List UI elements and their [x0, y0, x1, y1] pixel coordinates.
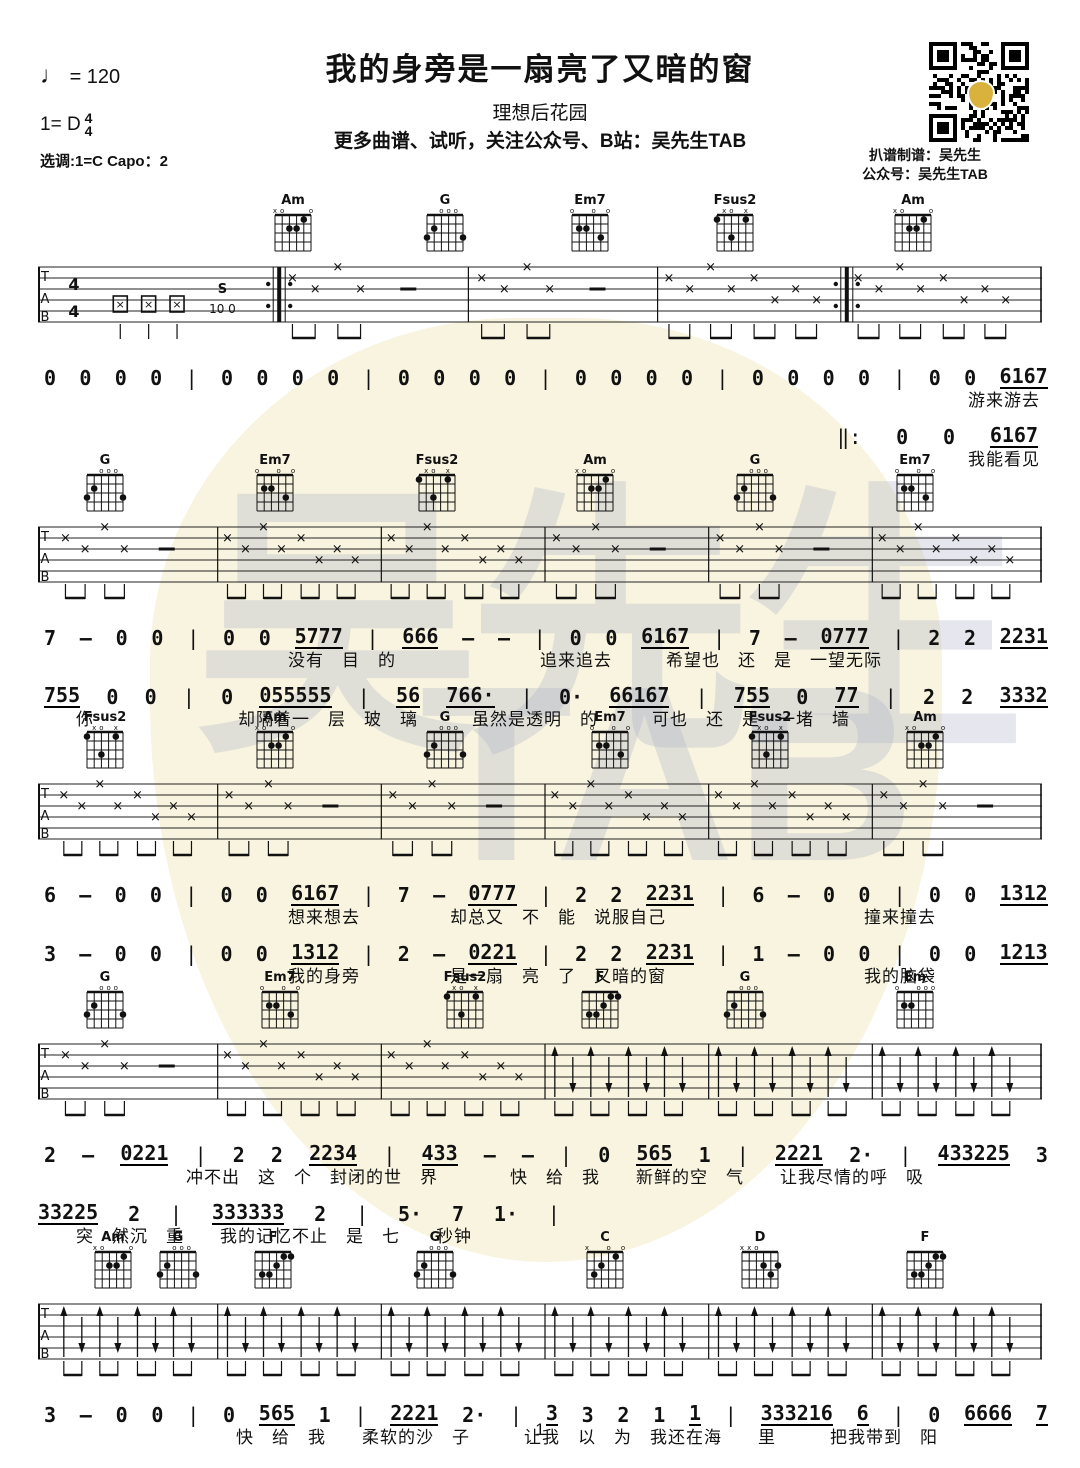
chord-diagram-G: Gooo	[153, 1230, 205, 1301]
barline: |	[548, 1203, 560, 1225]
jianpu-token: 755	[734, 684, 770, 708]
svg-text:×: ×	[663, 271, 674, 286]
barline: |	[363, 367, 375, 389]
tab-staff: TAB	[38, 1296, 1042, 1392]
barline: |	[363, 943, 375, 965]
svg-text:x: x	[905, 724, 909, 732]
svg-text:×: ×	[76, 799, 87, 814]
credit-transcriber: 扒谱制谱：吴先生	[790, 146, 1060, 165]
svg-text:o: o	[746, 984, 750, 992]
svg-text:o: o	[916, 984, 920, 992]
jianpu-token: 0	[398, 367, 410, 389]
chord-diagram-G: Gooo	[80, 453, 132, 524]
chord-diagram-G: Gooo	[410, 1230, 462, 1301]
system-3: Fsus2xoxAmxooGoooEm7oooFsus2xoxAmxooTAB×…	[38, 710, 1042, 990]
jianpu-token: 0	[44, 367, 56, 389]
jianpu-token: 0	[220, 943, 232, 965]
svg-text:×: ×	[522, 260, 533, 275]
jianpu-token: 6	[752, 884, 764, 906]
svg-text:o: o	[931, 984, 935, 992]
jianpu-token: 2	[610, 943, 622, 965]
svg-text:×: ×	[222, 1048, 233, 1063]
chord-diagram-Em7: Em7ooo	[565, 193, 617, 264]
svg-text:×: ×	[355, 282, 366, 297]
svg-text:×: ×	[898, 799, 909, 814]
chord-diagram-Fsus2: Fsus2xox	[710, 193, 762, 264]
jianpu-token: –	[462, 627, 474, 649]
svg-text:Em7: Em7	[594, 710, 625, 725]
jianpu-token: –	[79, 943, 91, 965]
svg-text:o: o	[739, 984, 743, 992]
jianpu-token: 2231	[1000, 625, 1048, 649]
svg-text:×: ×	[551, 531, 562, 546]
svg-text:x: x	[255, 724, 259, 732]
jianpu-token: 0	[433, 367, 445, 389]
number-line: 6–00|006167|7–0777|222231|6–00|001312	[38, 876, 1054, 906]
jianpu-token: 7	[44, 627, 56, 649]
jianpu-token: 0	[610, 367, 622, 389]
svg-text:o: o	[916, 467, 920, 475]
jianpu-token: 0	[292, 367, 304, 389]
jianpu-token: 2	[961, 686, 973, 708]
svg-text:Em7: Em7	[574, 193, 605, 208]
jianpu-token: 0	[752, 367, 764, 389]
svg-text:×: ×	[1004, 553, 1015, 568]
barline: |	[383, 1144, 395, 1166]
svg-text:×: ×	[915, 282, 926, 297]
chord-diagram-C: Cxoo	[580, 1230, 632, 1301]
svg-text:Fsus2: Fsus2	[749, 710, 792, 725]
svg-text:×: ×	[224, 788, 235, 803]
svg-text:×: ×	[895, 542, 906, 557]
svg-text:×: ×	[283, 799, 294, 814]
jianpu-token: 7	[398, 884, 410, 906]
jianpu-token: 1312	[1000, 882, 1048, 906]
svg-text:×: ×	[659, 799, 670, 814]
svg-text:×: ×	[476, 271, 487, 286]
jianpu-token: 2	[928, 627, 940, 649]
svg-text:×: ×	[58, 788, 69, 803]
svg-text:T: T	[40, 1047, 49, 1062]
svg-text:G: G	[440, 193, 451, 208]
jianpu-token: 2234	[309, 1142, 357, 1166]
svg-text:×: ×	[60, 531, 71, 546]
tuning-capo-info: 选调:1=C Capo：2	[40, 150, 168, 171]
svg-text:×: ×	[168, 799, 179, 814]
jianpu-token: 1	[699, 1144, 711, 1166]
chord-diagram-G: Gooo	[80, 970, 132, 1041]
svg-text:×: ×	[332, 1059, 343, 1074]
jianpu-token: –	[484, 1144, 496, 1166]
svg-text:×: ×	[80, 1059, 91, 1074]
jianpu-token: 6167	[990, 424, 1038, 448]
jianpu-token: 2	[271, 1144, 283, 1166]
svg-text:10 0: 10 0	[209, 302, 236, 316]
jianpu-token: 77	[835, 684, 859, 708]
svg-text:o: o	[255, 467, 259, 475]
svg-text:×: ×	[641, 810, 652, 825]
svg-text:×: ×	[713, 788, 724, 803]
svg-text:G: G	[100, 970, 111, 985]
svg-text:T: T	[40, 1307, 49, 1322]
jianpu-token: 0	[570, 627, 582, 649]
svg-text:×: ×	[544, 282, 555, 297]
svg-text:T: T	[40, 270, 49, 285]
svg-text:B: B	[41, 1347, 50, 1362]
jianpu-token: 0	[221, 686, 233, 708]
barline: |	[894, 884, 906, 906]
number-line: 7–00|005777|666––|006167|7–0777|222231	[38, 619, 1054, 649]
svg-text:×: ×	[144, 298, 153, 311]
chord-diagram-D: Dxxo	[735, 1230, 787, 1301]
jianpu-token: 6167	[1000, 365, 1048, 389]
svg-text:×: ×	[422, 1037, 433, 1052]
svg-text:×: ×	[240, 542, 251, 557]
chord-diagram-G: Gooo	[420, 193, 472, 264]
jianpu-token: 0	[598, 1144, 610, 1166]
chord-diagram-Em7: Em7ooo	[250, 453, 302, 524]
svg-text:×: ×	[119, 542, 130, 557]
svg-text:Fsus2: Fsus2	[416, 453, 459, 468]
jianpu-token: 5777	[295, 625, 343, 649]
svg-text:Am: Am	[583, 453, 607, 468]
barline: |	[539, 367, 551, 389]
tab-staff: TAB××××××××××××××××××××	[38, 1036, 1042, 1132]
jianpu-token: 3	[1036, 1144, 1048, 1166]
svg-text:o: o	[106, 467, 110, 475]
chord-diagram-Em7: Em7ooo	[585, 710, 637, 781]
svg-text:B: B	[41, 1087, 50, 1102]
barline: |	[560, 1144, 572, 1166]
chord-row: AmxooGoooFGoooCxooDxxoF	[38, 1230, 1042, 1296]
svg-text:×: ×	[350, 1070, 361, 1085]
svg-text:×: ×	[80, 542, 91, 557]
jianpu-token: 56	[396, 684, 420, 708]
svg-text:G: G	[430, 1230, 441, 1245]
svg-text:o: o	[582, 467, 586, 475]
jianpu-token: 0	[929, 943, 941, 965]
svg-text:×: ×	[459, 531, 470, 546]
jianpu-token: 0	[220, 884, 232, 906]
number-line: ‖:006167	[837, 418, 1042, 448]
svg-text:×: ×	[296, 531, 307, 546]
svg-text:G: G	[173, 1230, 184, 1245]
system-5: AmxooGoooFGoooCxooDxxoFTAB3–00|05651|222…	[38, 1230, 1042, 1451]
barline: |	[195, 1144, 207, 1166]
system-1: AmxooGoooEm7oooFsus2xoxAmxooTAB44×××S10 …	[38, 193, 1042, 473]
svg-text:T: T	[40, 530, 49, 545]
chord-diagram-G: Gooo	[720, 970, 772, 1041]
jianpu-token: –	[82, 1144, 94, 1166]
chord-diagram-Fsus2: Fsus2xox	[412, 453, 464, 524]
jianpu-token: 1213	[1000, 941, 1048, 965]
svg-text:×: ×	[877, 531, 888, 546]
svg-text:o: o	[611, 467, 615, 475]
svg-text:F: F	[921, 1230, 930, 1245]
svg-text:×: ×	[459, 1048, 470, 1063]
jianpu-token: 666	[402, 625, 438, 649]
jianpu-token: 0	[256, 943, 268, 965]
svg-text:A: A	[41, 1069, 50, 1084]
jianpu-token: 2221	[775, 1142, 823, 1166]
svg-text:×: ×	[243, 799, 254, 814]
svg-text:×: ×	[959, 293, 970, 308]
jianpu-token: 2	[314, 1203, 326, 1225]
jianpu-token: 2	[575, 884, 587, 906]
svg-text:×: ×	[386, 1048, 397, 1063]
jianpu-token: 2	[575, 943, 587, 965]
svg-text:B: B	[41, 310, 50, 325]
jianpu-token: 0	[858, 884, 870, 906]
svg-text:o: o	[924, 984, 928, 992]
lyrics-line: 冲不出 这 个 封闭的世 界 快 给 我 新鲜的空 气 让我尽情的呼 吸	[186, 1166, 1042, 1191]
jianpu-token: 5·	[398, 1203, 422, 1225]
jianpu-token: 0	[145, 686, 157, 708]
jianpu-token: –	[80, 627, 92, 649]
svg-text:G: G	[740, 970, 751, 985]
chord-diagram-Am: Amxoo	[888, 193, 940, 264]
svg-text:×: ×	[60, 1048, 71, 1063]
svg-text:×: ×	[513, 1070, 524, 1085]
svg-text:×: ×	[332, 542, 343, 557]
tab-staff: TAB××××××××××××××××××××××××××××××××××××	[38, 776, 1042, 872]
chord-diagram-Em7: Em7ooo	[255, 970, 307, 1041]
svg-text:Am: Am	[101, 1230, 125, 1245]
svg-text:o: o	[749, 467, 753, 475]
jianpu-token: 0	[327, 367, 339, 389]
svg-text:×: ×	[172, 298, 181, 311]
jianpu-token: 0	[964, 884, 976, 906]
svg-text:×: ×	[314, 1070, 325, 1085]
svg-text:o: o	[626, 724, 630, 732]
chord-diagram-Fsus2: Fsus2xox	[745, 710, 797, 781]
svg-text:x: x	[92, 724, 96, 732]
jianpu-token: 433	[422, 1142, 458, 1166]
jianpu-token: 0	[823, 884, 835, 906]
barline: |	[696, 686, 708, 708]
svg-text:Am: Am	[263, 710, 287, 725]
jianpu-token: 0221	[120, 1142, 168, 1166]
svg-text:o: o	[446, 724, 450, 732]
svg-text:×: ×	[150, 810, 161, 825]
svg-text:G: G	[750, 453, 761, 468]
svg-text:×: ×	[677, 810, 688, 825]
svg-text:o: o	[99, 467, 103, 475]
svg-text:×: ×	[571, 542, 582, 557]
jianpu-token: 0	[221, 367, 233, 389]
jianpu-token: 0	[150, 943, 162, 965]
barline: |	[534, 627, 546, 649]
svg-text:×: ×	[332, 260, 343, 275]
svg-text:×: ×	[276, 542, 287, 557]
barline: |	[187, 627, 199, 649]
svg-text:o: o	[291, 724, 295, 732]
jianpu-token: –	[498, 627, 510, 649]
svg-text:×: ×	[495, 1059, 506, 1074]
svg-text:Am: Am	[281, 193, 305, 208]
barline: |	[183, 686, 195, 708]
svg-text:×: ×	[878, 788, 889, 803]
svg-text:Am: Am	[901, 193, 925, 208]
credit-account: 公众号：吴先生TAB	[790, 165, 1060, 184]
svg-text:×: ×	[119, 1059, 130, 1074]
svg-text:x: x	[474, 984, 478, 992]
svg-text:×: ×	[549, 788, 560, 803]
svg-text:G: G	[440, 710, 451, 725]
svg-text:o: o	[281, 984, 285, 992]
jianpu-token: 2	[398, 943, 410, 965]
barline: |	[717, 884, 729, 906]
svg-text:Em7: Em7	[899, 453, 930, 468]
jianpu-token: 0	[858, 943, 870, 965]
svg-text:×: ×	[938, 271, 949, 286]
svg-text:o: o	[262, 724, 266, 732]
svg-text:D: D	[755, 1230, 766, 1245]
svg-text:o: o	[276, 467, 280, 475]
jianpu-token: 755	[44, 684, 80, 708]
jianpu-token: 2	[923, 686, 935, 708]
svg-text:o: o	[764, 724, 768, 732]
number-line: 0000|0000|0000|0000|0000|006167	[38, 359, 1054, 389]
chord-diagram-Am: Amxoo	[900, 710, 952, 781]
svg-text:×: ×	[968, 553, 979, 568]
page-number: 1	[0, 1420, 1080, 1440]
chord-diagram-Fsus2: Fsus2xox	[440, 970, 492, 1041]
svg-text:F: F	[596, 970, 605, 985]
jianpu-token: 2231	[646, 941, 694, 965]
jianpu-token: 2·	[849, 1144, 873, 1166]
svg-text:×: ×	[931, 542, 942, 557]
svg-text:x: x	[575, 467, 579, 475]
svg-text:A: A	[41, 809, 50, 824]
chord-diagram-Am: Amxoo	[250, 710, 302, 781]
jianpu-token: 0	[469, 367, 481, 389]
barline: |	[737, 1144, 749, 1166]
jianpu-token: 3	[44, 943, 56, 965]
svg-text:A: A	[41, 552, 50, 567]
jianpu-token: 0	[256, 884, 268, 906]
barline: |	[716, 367, 728, 389]
jianpu-token: –	[522, 1144, 534, 1166]
svg-text:×: ×	[186, 810, 197, 825]
svg-text:x: x	[452, 984, 456, 992]
jianpu-token: 0	[646, 367, 658, 389]
jianpu-token: 7	[749, 627, 761, 649]
svg-text:Fsus2: Fsus2	[444, 970, 487, 985]
svg-text:o: o	[296, 984, 300, 992]
jianpu-token: 0	[223, 627, 235, 649]
svg-text:×: ×	[805, 810, 816, 825]
jianpu-token: 0	[150, 367, 162, 389]
tab-staff: TAB××××××××××××××××××××××××××××××××××××	[38, 519, 1042, 615]
svg-text:C: C	[600, 1230, 610, 1245]
svg-text:o: o	[754, 984, 758, 992]
credits: 扒谱制谱：吴先生 公众号：吴先生TAB	[790, 146, 1060, 184]
jianpu-token: 1·	[494, 1203, 518, 1225]
barline: |	[885, 686, 897, 708]
svg-text:×: ×	[314, 553, 325, 568]
lyrics-line: 想来想去 却总又 不 能 说服自己 撞来撞去	[288, 906, 1042, 931]
barline: |	[893, 367, 905, 389]
svg-text:Fsus2: Fsus2	[714, 193, 757, 208]
barline: |	[892, 627, 904, 649]
jianpu-token: 0·	[559, 686, 583, 708]
jianpu-token: 33225	[38, 1201, 98, 1225]
svg-text:×: ×	[726, 282, 737, 297]
barline: |	[894, 943, 906, 965]
jianpu-token: 0	[896, 426, 908, 448]
lyrics-line: 没有 目 的 追来追去 希望也 还 是 一望无际	[288, 649, 1042, 674]
chord-diagram-Am: Amxoo	[268, 193, 320, 264]
lyrics-line: 游来游去	[38, 389, 1042, 414]
barline: |	[186, 367, 198, 389]
svg-text:x: x	[779, 724, 783, 732]
svg-text:×: ×	[790, 282, 801, 297]
svg-text:o: o	[895, 467, 899, 475]
jianpu-token: 0	[115, 884, 127, 906]
svg-text:×: ×	[567, 799, 578, 814]
svg-text:×: ×	[386, 531, 397, 546]
svg-text:×: ×	[603, 799, 614, 814]
svg-text:×: ×	[407, 799, 418, 814]
svg-text:o: o	[99, 984, 103, 992]
svg-text:o: o	[764, 467, 768, 475]
svg-text:×: ×	[513, 553, 524, 568]
svg-text:×: ×	[350, 553, 361, 568]
svg-text:×: ×	[767, 799, 778, 814]
jianpu-token: 2	[964, 627, 976, 649]
svg-text:×: ×	[240, 1059, 251, 1074]
svg-text:o: o	[459, 984, 463, 992]
jianpu-token: 0777	[820, 625, 868, 649]
svg-text:o: o	[291, 467, 295, 475]
jianpu-token: 0777	[468, 882, 516, 906]
jianpu-token: 2	[610, 884, 622, 906]
jianpu-token: 0	[787, 367, 799, 389]
svg-text:×: ×	[477, 553, 488, 568]
svg-text:Em: Em	[904, 970, 926, 985]
jianpu-token: 0	[259, 627, 271, 649]
svg-text:×: ×	[387, 788, 398, 803]
chord-row: GoooEm7oooFsus2xoxAmxooGoooEm7ooo	[38, 453, 1042, 519]
jianpu-token: 0	[858, 367, 870, 389]
jianpu-token: 0	[823, 367, 835, 389]
jianpu-token: 0	[929, 367, 941, 389]
artist-name: 理想后花园	[0, 98, 1080, 125]
svg-text:A: A	[41, 1329, 50, 1344]
barline: |	[521, 686, 533, 708]
svg-text:Em7: Em7	[264, 970, 295, 985]
svg-text:×: ×	[440, 542, 451, 557]
svg-text:×: ×	[874, 282, 885, 297]
svg-text:×: ×	[610, 542, 621, 557]
jianpu-token: 0	[943, 426, 955, 448]
number-line: 2–0221|222234|433––|05651|22212·|4332253	[38, 1136, 1054, 1166]
barline: |	[713, 627, 725, 649]
jianpu-token: 0	[605, 627, 617, 649]
svg-text:×: ×	[841, 810, 852, 825]
number-line: 332252|3333332|5·71·|	[38, 1195, 560, 1225]
svg-text:S: S	[218, 282, 227, 297]
jianpu-token: 0	[79, 367, 91, 389]
svg-text:×: ×	[404, 542, 415, 557]
jianpu-token: 0	[964, 367, 976, 389]
svg-text:4: 4	[68, 275, 79, 294]
qr-code	[925, 42, 1033, 142]
svg-text:A: A	[41, 292, 50, 307]
jianpu-token: 766·	[446, 684, 494, 708]
svg-text:×: ×	[774, 542, 785, 557]
